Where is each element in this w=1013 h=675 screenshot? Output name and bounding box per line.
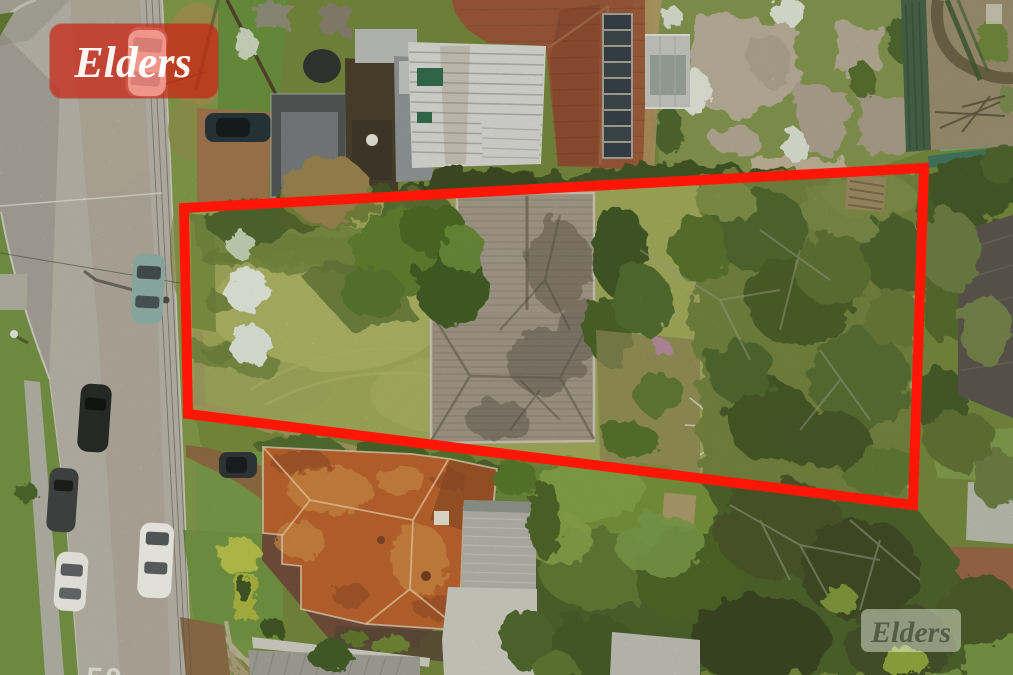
svg-text:Elders: Elders: [870, 616, 951, 649]
svg-text:Elders: Elders: [73, 38, 191, 87]
